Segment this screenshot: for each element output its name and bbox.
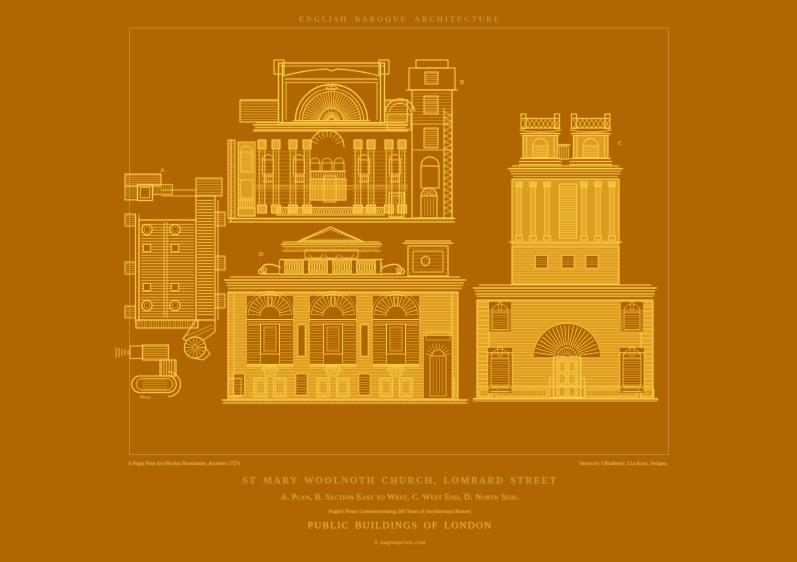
svg-text:ST MARY WOOLNOTH CHURCH, LOMBA: ST MARY WOOLNOTH CHURCH, LOMBARD STREET bbox=[242, 476, 557, 487]
svg-text:A: A bbox=[160, 168, 165, 174]
svg-text:A. Plan, B. Section East to We: A. Plan, B. Section East to West, C. Wes… bbox=[281, 493, 520, 502]
svg-text:C: C bbox=[618, 141, 622, 147]
svg-text:A Pugin Print for (Nicolas Haw: A Pugin Print for (Nicolas Hawksmoor, Ar… bbox=[128, 462, 240, 467]
svg-text:PUBLIC BUILDINGS OF LONDON: PUBLIC BUILDINGS OF LONDON bbox=[308, 521, 493, 532]
svg-text:© puginsprints.com: © puginsprints.com bbox=[374, 539, 426, 546]
svg-text:ENGLISH BAROQUE ARCHITECTURE: ENGLISH BAROQUE ARCHITECTURE bbox=[299, 15, 501, 24]
svg-text:Pugin's Prints Commemorating 2: Pugin's Prints Commemorating 200 Years o… bbox=[329, 508, 472, 515]
svg-text:D: D bbox=[259, 252, 264, 258]
svg-text:B: B bbox=[460, 80, 464, 86]
svg-text:Drawn by T.Bradberry, J.Le.Keu: Drawn by T.Bradberry, J.Le.Keux, Sculpto… bbox=[580, 462, 668, 467]
svg-text:West: West bbox=[140, 395, 151, 400]
